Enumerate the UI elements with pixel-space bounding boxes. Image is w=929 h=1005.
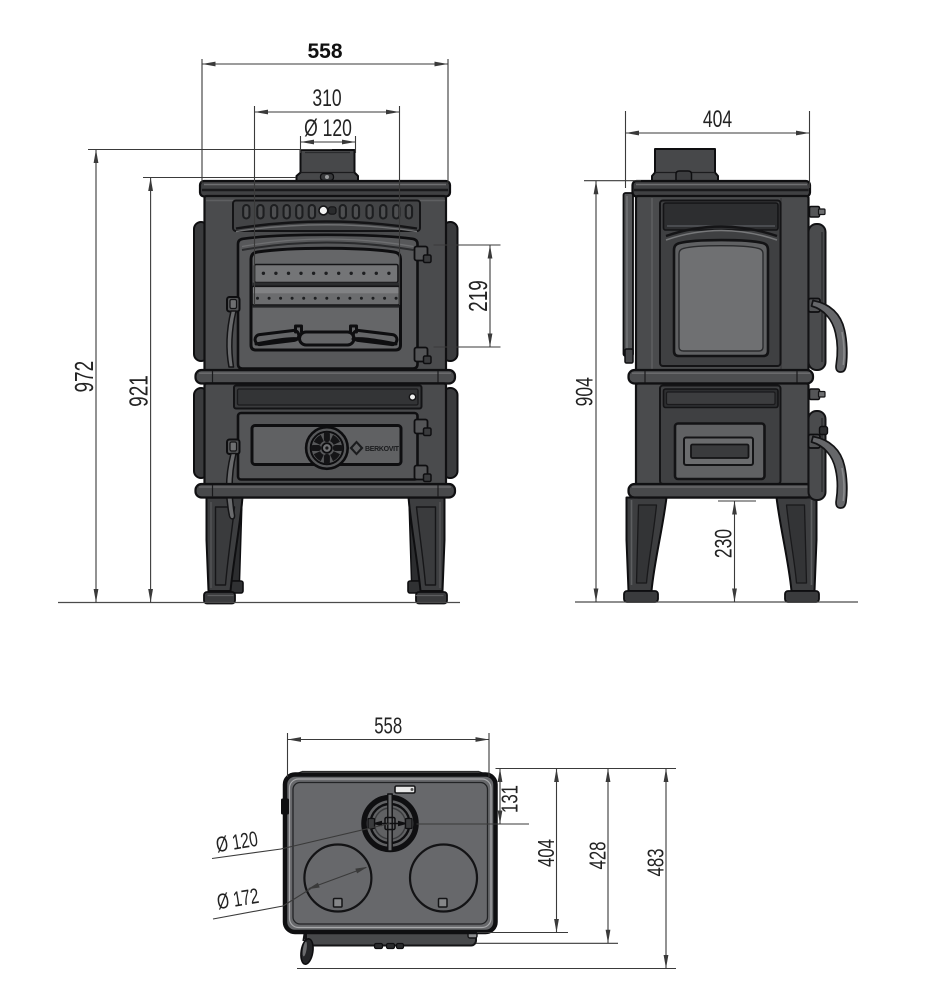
svg-text:428: 428 xyxy=(586,842,611,870)
svg-text:404: 404 xyxy=(535,839,560,867)
svg-text:310: 310 xyxy=(312,85,341,111)
svg-text:904: 904 xyxy=(572,377,598,406)
svg-text:483: 483 xyxy=(644,849,669,877)
svg-text:131: 131 xyxy=(498,785,523,813)
svg-text:404: 404 xyxy=(703,106,732,132)
svg-text:219: 219 xyxy=(463,280,493,312)
svg-text:BERKOVIT: BERKOVIT xyxy=(365,446,400,453)
svg-text:Ø 120: Ø 120 xyxy=(304,115,352,141)
svg-text:230: 230 xyxy=(711,529,737,558)
svg-text:558: 558 xyxy=(307,40,342,63)
svg-text:921: 921 xyxy=(124,375,154,407)
svg-text:972: 972 xyxy=(69,361,99,393)
svg-text:558: 558 xyxy=(374,714,402,739)
